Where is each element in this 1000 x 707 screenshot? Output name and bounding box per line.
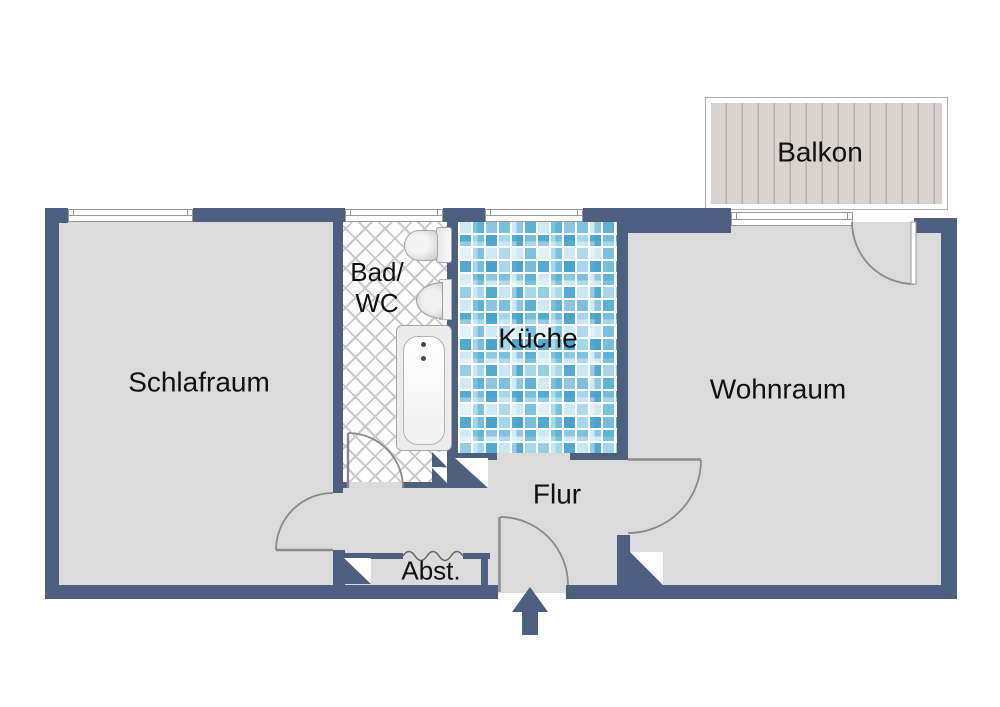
entrance-threshold [498, 585, 566, 593]
wall-bad-bottom-left [333, 482, 348, 488]
floor-plan: Schlafraum Bad/ WC Küche Wohnraum Flur A… [0, 0, 1000, 707]
jamb-symbol-kueche [455, 458, 488, 488]
window-bad [345, 209, 443, 222]
toilet-tank-symbol [436, 227, 452, 263]
label-schlafraum: Schlafraum [128, 368, 270, 399]
wall-top-3 [443, 208, 485, 222]
wall-bottom-left [45, 585, 498, 599]
window-kueche [485, 209, 583, 222]
jamb-symbol-bad-2 [432, 468, 447, 483]
label-bad-line2: WC [350, 288, 404, 319]
bathtub-drain-dot [421, 356, 426, 361]
wall-top-wohnraum-right [914, 218, 957, 233]
window-balkon-sill [731, 212, 853, 226]
entrance-arrow-icon [512, 587, 548, 635]
wall-schlafraum-bad [333, 222, 343, 493]
wall-wohnraum-stub [617, 535, 630, 585]
wall-kueche-wohnraum [617, 222, 628, 460]
wall-top-wohnraum-left [628, 208, 731, 233]
wall-top-1 [45, 208, 68, 223]
wall-kueche-bottom-right [570, 453, 628, 460]
bathtub-inner [403, 336, 445, 445]
wall-bad-bottom-right [402, 482, 458, 488]
jamb-symbol-bad-1 [432, 452, 447, 467]
label-abst: Abst. [401, 557, 460, 586]
label-kueche: Küche [498, 324, 577, 355]
wall-abst-right [481, 553, 488, 585]
wall-top-2 [193, 208, 345, 222]
wall-top-4 [583, 208, 628, 222]
label-flur: Flur [533, 480, 581, 511]
wall-right [941, 218, 957, 599]
jamb-symbol-wohnraum [630, 552, 663, 585]
label-balkon: Balkon [777, 138, 863, 169]
label-bad-wc: Bad/ WC [350, 257, 404, 319]
wall-bottom-right [566, 585, 957, 599]
window-schlafraum [68, 209, 193, 222]
label-bad-line1: Bad/ [350, 257, 404, 288]
toilet-symbol [404, 230, 438, 261]
wall-left [45, 208, 59, 599]
label-wohnraum: Wohnraum [710, 375, 846, 406]
jamb-symbol-abst [344, 558, 371, 584]
bathtub-faucet-dot [421, 342, 426, 347]
